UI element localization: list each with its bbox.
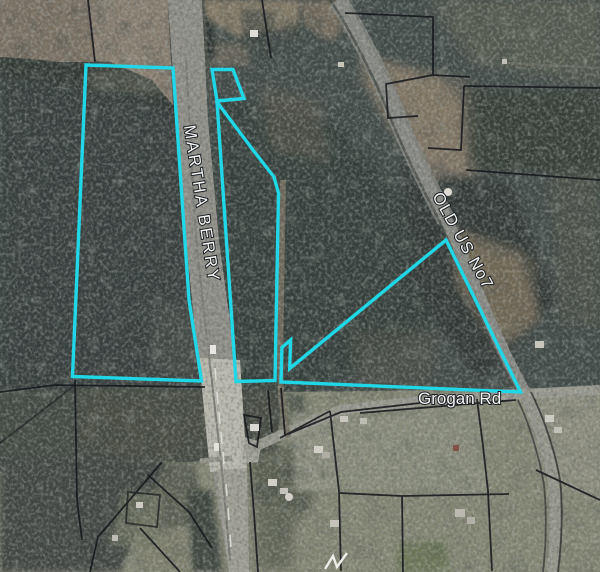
svg-text:Grogan Rd: Grogan Rd (418, 389, 501, 408)
